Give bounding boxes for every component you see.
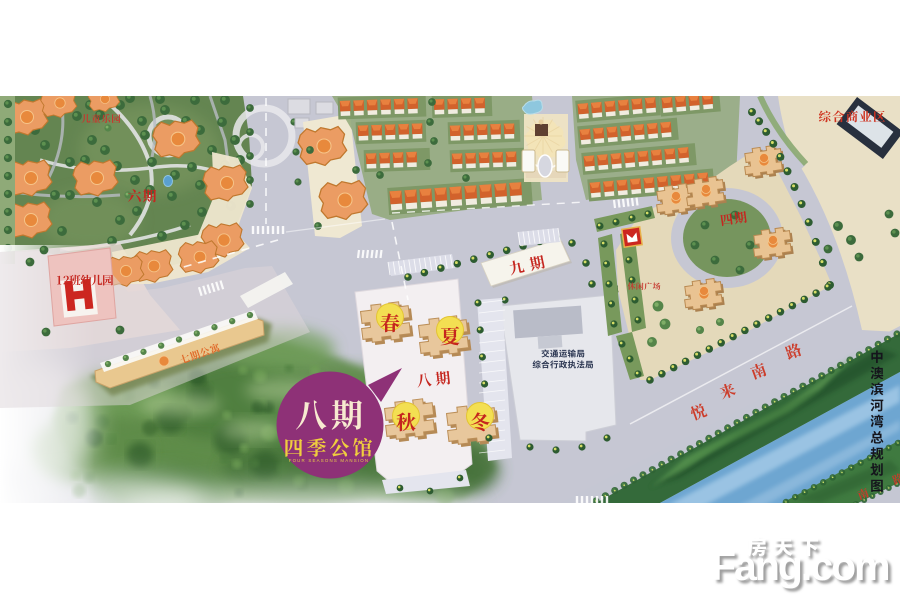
svg-text:Fang.com: Fang.com: [711, 543, 889, 589]
svg-text:FOUR SEASONS MANSION: FOUR SEASONS MANSION: [289, 458, 370, 463]
